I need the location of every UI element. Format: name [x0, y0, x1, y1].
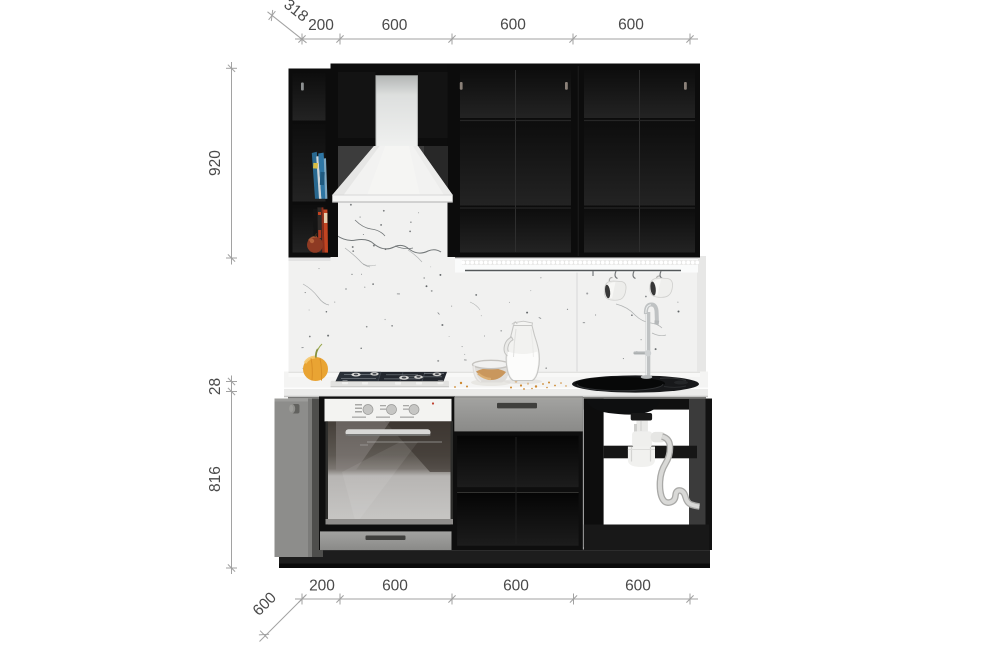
svg-text:816: 816 — [207, 466, 224, 492]
svg-text:600: 600 — [618, 17, 644, 34]
svg-text:600: 600 — [625, 578, 651, 595]
svg-text:920: 920 — [207, 150, 224, 176]
svg-text:600: 600 — [382, 578, 408, 595]
svg-text:600: 600 — [500, 17, 526, 34]
svg-text:200: 200 — [308, 17, 334, 34]
svg-text:600: 600 — [382, 17, 408, 34]
svg-text:600: 600 — [503, 578, 529, 595]
svg-text:200: 200 — [309, 578, 335, 595]
svg-text:28: 28 — [207, 378, 224, 395]
